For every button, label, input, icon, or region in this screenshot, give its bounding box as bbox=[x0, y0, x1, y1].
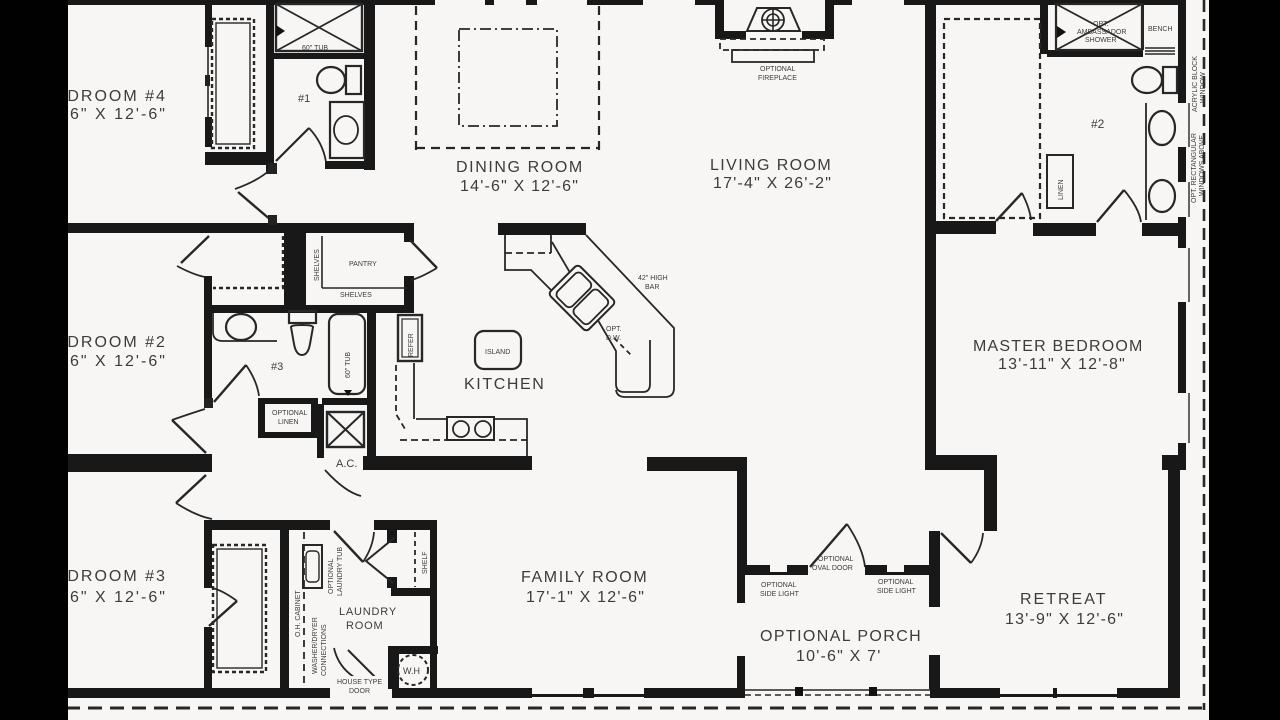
svg-text:SHELVES: SHELVES bbox=[314, 249, 321, 281]
svg-text:LINEN: LINEN bbox=[278, 419, 299, 426]
svg-text:DOOR: DOOR bbox=[349, 688, 370, 695]
svg-text:W.H: W.H bbox=[403, 666, 420, 676]
svg-text:DINING ROOM: DINING ROOM bbox=[456, 159, 584, 176]
svg-text:17'-1" X 12'-6": 17'-1" X 12'-6" bbox=[526, 589, 645, 606]
svg-text:LAUNDRY: LAUNDRY bbox=[339, 606, 397, 618]
svg-text:SHELF: SHELF bbox=[422, 551, 429, 574]
svg-text:FIREPLACE: FIREPLACE bbox=[758, 75, 797, 82]
svg-text:CONNECTIONS: CONNECTIONS bbox=[321, 624, 328, 676]
svg-text:WINDOW: WINDOW bbox=[1200, 72, 1207, 103]
svg-text:A.C.: A.C. bbox=[336, 458, 357, 470]
svg-text:OPTIONAL: OPTIONAL bbox=[760, 66, 796, 73]
svg-text:OPTIONAL PORCH: OPTIONAL PORCH bbox=[760, 628, 922, 645]
svg-text:13'-11" X 12'-8": 13'-11" X 12'-8" bbox=[998, 356, 1126, 373]
svg-text:SHELVES: SHELVES bbox=[340, 292, 372, 299]
svg-text:WASHER/DRYER: WASHER/DRYER bbox=[312, 617, 319, 674]
svg-text:SIDE LIGHT: SIDE LIGHT bbox=[877, 588, 917, 595]
svg-text:OPT.: OPT. bbox=[606, 326, 622, 333]
svg-text:ISLAND: ISLAND bbox=[485, 349, 510, 356]
svg-text:MASTER BEDROOM: MASTER BEDROOM bbox=[973, 338, 1144, 355]
svg-text:OPTIONAL: OPTIONAL bbox=[761, 582, 797, 589]
svg-text:14'-6" X 12'-6": 14'-6" X 12'-6" bbox=[460, 178, 579, 195]
svg-text:OPTIONAL: OPTIONAL bbox=[878, 579, 914, 586]
svg-text:42" HIGH: 42" HIGH bbox=[638, 275, 668, 282]
svg-text:#3: #3 bbox=[271, 361, 283, 373]
svg-text:SHOWER: SHOWER bbox=[1085, 37, 1117, 44]
svg-text:#1: #1 bbox=[298, 93, 310, 105]
svg-text:SIDE LIGHT: SIDE LIGHT bbox=[760, 591, 800, 598]
svg-text:WINDOWS ABOVE: WINDOWS ABOVE bbox=[1199, 135, 1206, 196]
svg-text:RETREAT: RETREAT bbox=[1020, 591, 1107, 608]
svg-text:#2: #2 bbox=[1091, 117, 1105, 131]
svg-text:KITCHEN: KITCHEN bbox=[464, 376, 545, 393]
svg-text:LINEN: LINEN bbox=[1058, 179, 1065, 200]
svg-text:AMBASSADOR: AMBASSADOR bbox=[1077, 29, 1126, 36]
svg-text:OPT. RECTANGULAR: OPT. RECTANGULAR bbox=[1191, 133, 1198, 203]
svg-text:REFER: REFER bbox=[408, 333, 415, 357]
svg-text:OPT.: OPT. bbox=[1093, 21, 1109, 28]
svg-text:D.W.: D.W. bbox=[606, 335, 621, 342]
svg-text:PANTRY: PANTRY bbox=[349, 261, 377, 268]
svg-text:17'-4" X 26'-2": 17'-4" X 26'-2" bbox=[713, 175, 832, 192]
svg-text:O.H. CABINET: O.H. CABINET bbox=[295, 590, 302, 637]
svg-text:LIVING ROOM: LIVING ROOM bbox=[710, 157, 832, 174]
svg-text:OPTIONAL: OPTIONAL bbox=[818, 556, 854, 563]
svg-text:OPTIONAL: OPTIONAL bbox=[328, 558, 335, 594]
svg-text:HOUSE TYPE: HOUSE TYPE bbox=[337, 679, 382, 686]
svg-text:ROOM: ROOM bbox=[346, 620, 383, 632]
svg-text:OPTIONAL: OPTIONAL bbox=[272, 410, 308, 417]
svg-text:BAR: BAR bbox=[645, 284, 659, 291]
svg-text:10'-6" X 7': 10'-6" X 7' bbox=[796, 648, 881, 665]
svg-text:FAMILY ROOM: FAMILY ROOM bbox=[521, 569, 648, 586]
svg-text:OVAL DOOR: OVAL DOOR bbox=[812, 565, 853, 572]
svg-text:ACRYLIC BLOCK: ACRYLIC BLOCK bbox=[1192, 56, 1199, 112]
svg-text:13'-9" X 12'-6": 13'-9" X 12'-6" bbox=[1005, 611, 1124, 628]
svg-text:BENCH: BENCH bbox=[1148, 26, 1173, 33]
svg-text:LAUNDRY TUB: LAUNDRY TUB bbox=[337, 547, 344, 596]
svg-text:60" TUB: 60" TUB bbox=[345, 352, 352, 378]
svg-text:60" TUB: 60" TUB bbox=[302, 45, 328, 52]
